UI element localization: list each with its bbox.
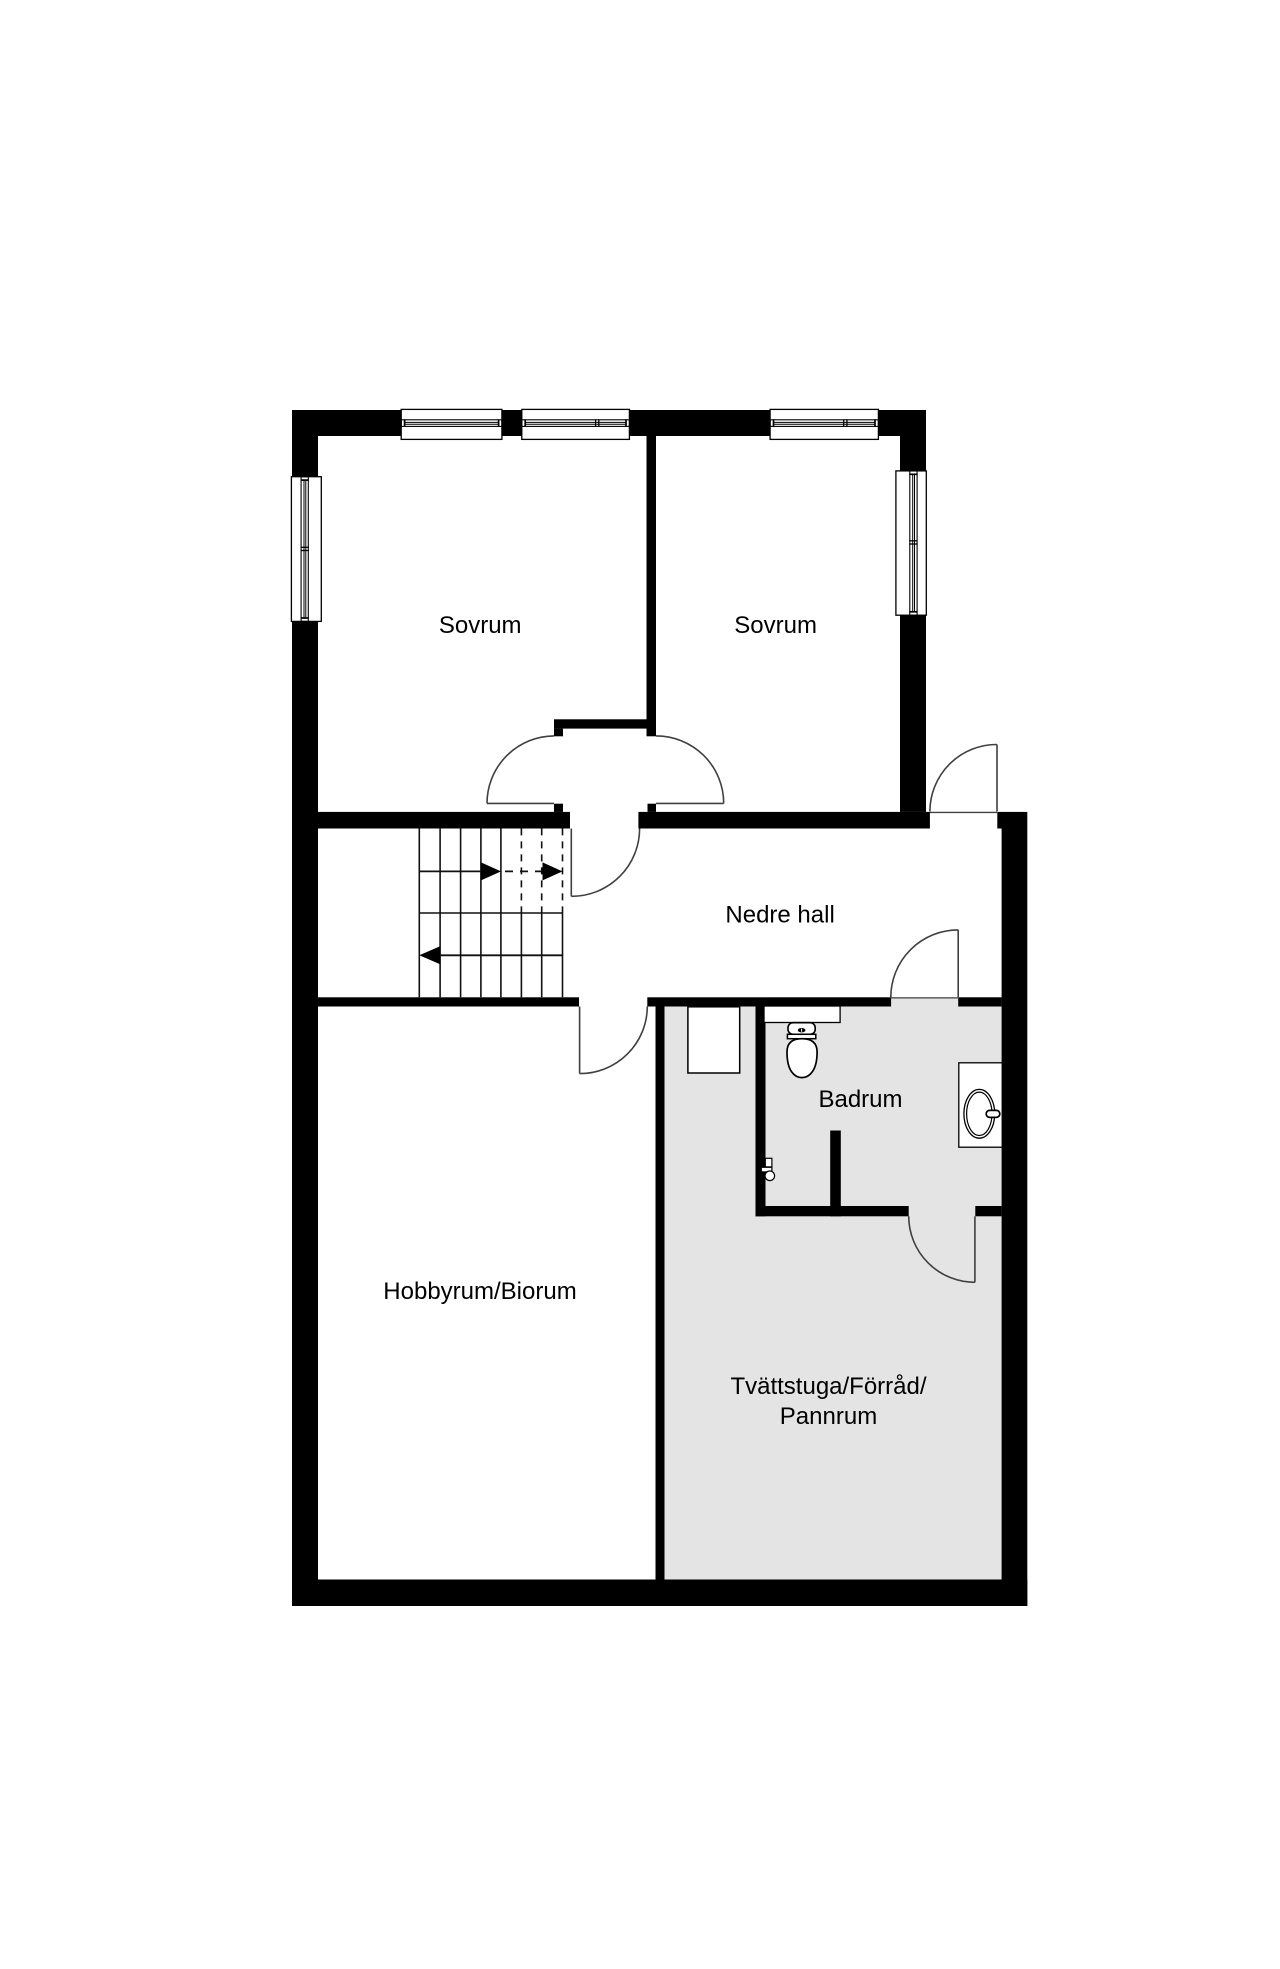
svg-text:Badrum: Badrum <box>818 1086 902 1113</box>
svg-text:Nedre hall: Nedre hall <box>725 902 834 929</box>
svg-text:Pannrum: Pannrum <box>780 1403 877 1430</box>
svg-text:Sovrum: Sovrum <box>734 612 817 639</box>
svg-text:Sovrum: Sovrum <box>439 612 522 639</box>
svg-text:Tvättstuga/Förråd/: Tvättstuga/Förråd/ <box>730 1373 926 1400</box>
svg-text:Hobbyrum/Biorum: Hobbyrum/Biorum <box>383 1278 576 1305</box>
